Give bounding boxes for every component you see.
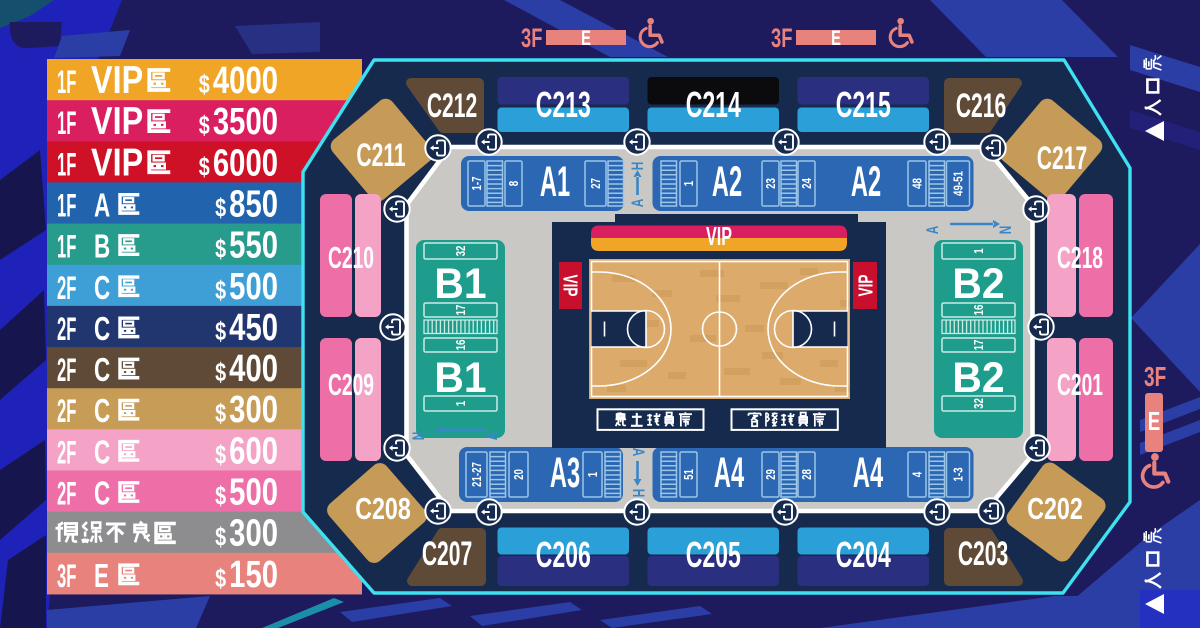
svg-text:$: $ [215,563,226,592]
svg-text:2F: 2F [57,353,76,388]
svg-text:C204: C204 [836,536,891,575]
svg-text:C202: C202 [1027,491,1083,526]
svg-text:20: 20 [513,469,527,480]
svg-text:1F: 1F [57,107,76,142]
svg-text:E: E [581,26,591,49]
svg-text:2F: 2F [57,312,76,347]
svg-text:2F: 2F [57,436,76,471]
svg-text:C211: C211 [356,136,405,173]
svg-text:27: 27 [590,178,604,189]
svg-text:E: E [1148,406,1160,436]
svg-text:C: C [94,269,110,307]
svg-text:C207: C207 [422,534,472,572]
svg-text:H: H [628,489,647,498]
svg-text:VIP: VIP [91,99,143,143]
svg-text:C: C [94,434,110,472]
svg-text:3F: 3F [57,559,76,594]
svg-text:1: 1 [455,400,469,406]
svg-text:C206: C206 [536,536,591,575]
svg-text:600: 600 [229,430,278,473]
svg-text:B2: B2 [952,353,1004,401]
svg-text:1: 1 [587,471,601,477]
svg-text:$: $ [215,193,226,222]
svg-text:B: B [94,228,110,266]
svg-text:28: 28 [801,469,815,480]
svg-text:A4: A4 [714,450,745,497]
svg-text:24: 24 [801,178,815,189]
svg-text:C208: C208 [355,491,411,526]
svg-text:VIP: VIP [706,221,732,251]
svg-text:A: A [483,431,502,440]
svg-text:C: C [94,475,110,513]
svg-text:VIP: VIP [855,275,877,297]
svg-text:$: $ [215,234,226,263]
svg-text:C: C [94,311,110,349]
svg-text:16: 16 [973,305,987,316]
svg-text:23: 23 [765,178,779,189]
svg-text:$: $ [199,111,210,140]
svg-text:E: E [831,26,841,49]
svg-text:3F: 3F [521,22,542,52]
svg-text:21-27: 21-27 [471,462,485,487]
svg-text:48: 48 [912,178,926,189]
svg-text:16: 16 [455,340,469,351]
svg-text:B1: B1 [434,259,486,307]
svg-text:C203: C203 [958,534,1008,572]
svg-text:C210: C210 [328,242,374,276]
svg-text:51: 51 [683,469,697,480]
svg-text:2F: 2F [57,271,76,306]
svg-text:B1: B1 [434,353,486,401]
svg-text:1-7: 1-7 [471,176,485,190]
svg-text:17: 17 [973,340,987,351]
svg-text:300: 300 [229,389,278,432]
svg-text:VIP: VIP [91,58,143,102]
svg-text:3F: 3F [1144,361,1166,393]
svg-text:E: E [94,557,109,595]
svg-text:C: C [94,352,110,390]
svg-text:A3: A3 [550,450,580,497]
svg-text:B2: B2 [952,259,1004,307]
svg-text:A: A [924,225,943,234]
svg-text:4: 4 [912,471,926,477]
svg-text:$: $ [215,316,226,345]
svg-text:$: $ [215,440,226,469]
svg-text:$: $ [199,69,210,98]
svg-text:C215: C215 [836,86,891,125]
svg-text:A: A [629,198,648,207]
svg-text:H: H [629,162,648,171]
svg-text:1-3: 1-3 [953,467,967,481]
svg-text:C216: C216 [956,86,1006,124]
svg-text:N: N [410,432,429,441]
svg-text:C: C [94,393,110,431]
svg-text:A: A [94,187,110,225]
svg-text:A: A [628,448,647,457]
svg-text:$: $ [215,481,226,510]
svg-text:A1: A1 [540,159,570,206]
svg-text:8: 8 [508,180,522,186]
svg-text:1: 1 [683,180,697,186]
svg-text:C201: C201 [1057,369,1103,403]
svg-text:$: $ [215,275,226,304]
svg-text:A4: A4 [853,450,884,497]
svg-text:A2: A2 [712,159,742,206]
svg-text:300: 300 [229,512,278,555]
svg-text:$: $ [215,399,226,428]
svg-text:150: 150 [229,553,278,596]
svg-text:400: 400 [229,347,278,390]
svg-text:C214: C214 [686,86,741,125]
svg-text:3F: 3F [771,22,792,52]
svg-text:3500: 3500 [213,101,278,144]
svg-text:850: 850 [229,183,278,226]
svg-text:450: 450 [229,306,278,349]
svg-text:VIP: VIP [559,275,581,297]
svg-text:49-51: 49-51 [953,171,967,196]
svg-text:C212: C212 [427,86,477,124]
svg-text:$: $ [199,152,210,181]
svg-text:32: 32 [455,246,469,257]
svg-text:32: 32 [973,398,987,409]
svg-text:1F: 1F [57,148,76,183]
svg-text:N: N [997,226,1016,235]
svg-text:A2: A2 [851,159,881,206]
svg-text:6000: 6000 [213,142,278,185]
svg-text:550: 550 [229,224,278,267]
svg-text:500: 500 [229,265,278,308]
svg-text:2F: 2F [57,395,76,430]
svg-text:C209: C209 [328,369,374,403]
svg-text:C213: C213 [536,86,591,125]
svg-text:4000: 4000 [213,59,278,102]
svg-text:$: $ [215,522,226,551]
svg-text:1F: 1F [57,65,76,100]
svg-text:29: 29 [765,469,779,480]
svg-text:$: $ [215,357,226,386]
svg-text:1F: 1F [57,230,76,265]
svg-text:C205: C205 [686,536,741,575]
svg-text:500: 500 [229,471,278,514]
svg-text:2F: 2F [57,477,76,512]
svg-text:C218: C218 [1057,242,1103,276]
svg-text:1F: 1F [57,189,76,224]
svg-text:17: 17 [455,305,469,316]
svg-text:1: 1 [973,248,987,254]
svg-text:C217: C217 [1037,139,1087,176]
svg-text:VIP: VIP [91,140,143,184]
